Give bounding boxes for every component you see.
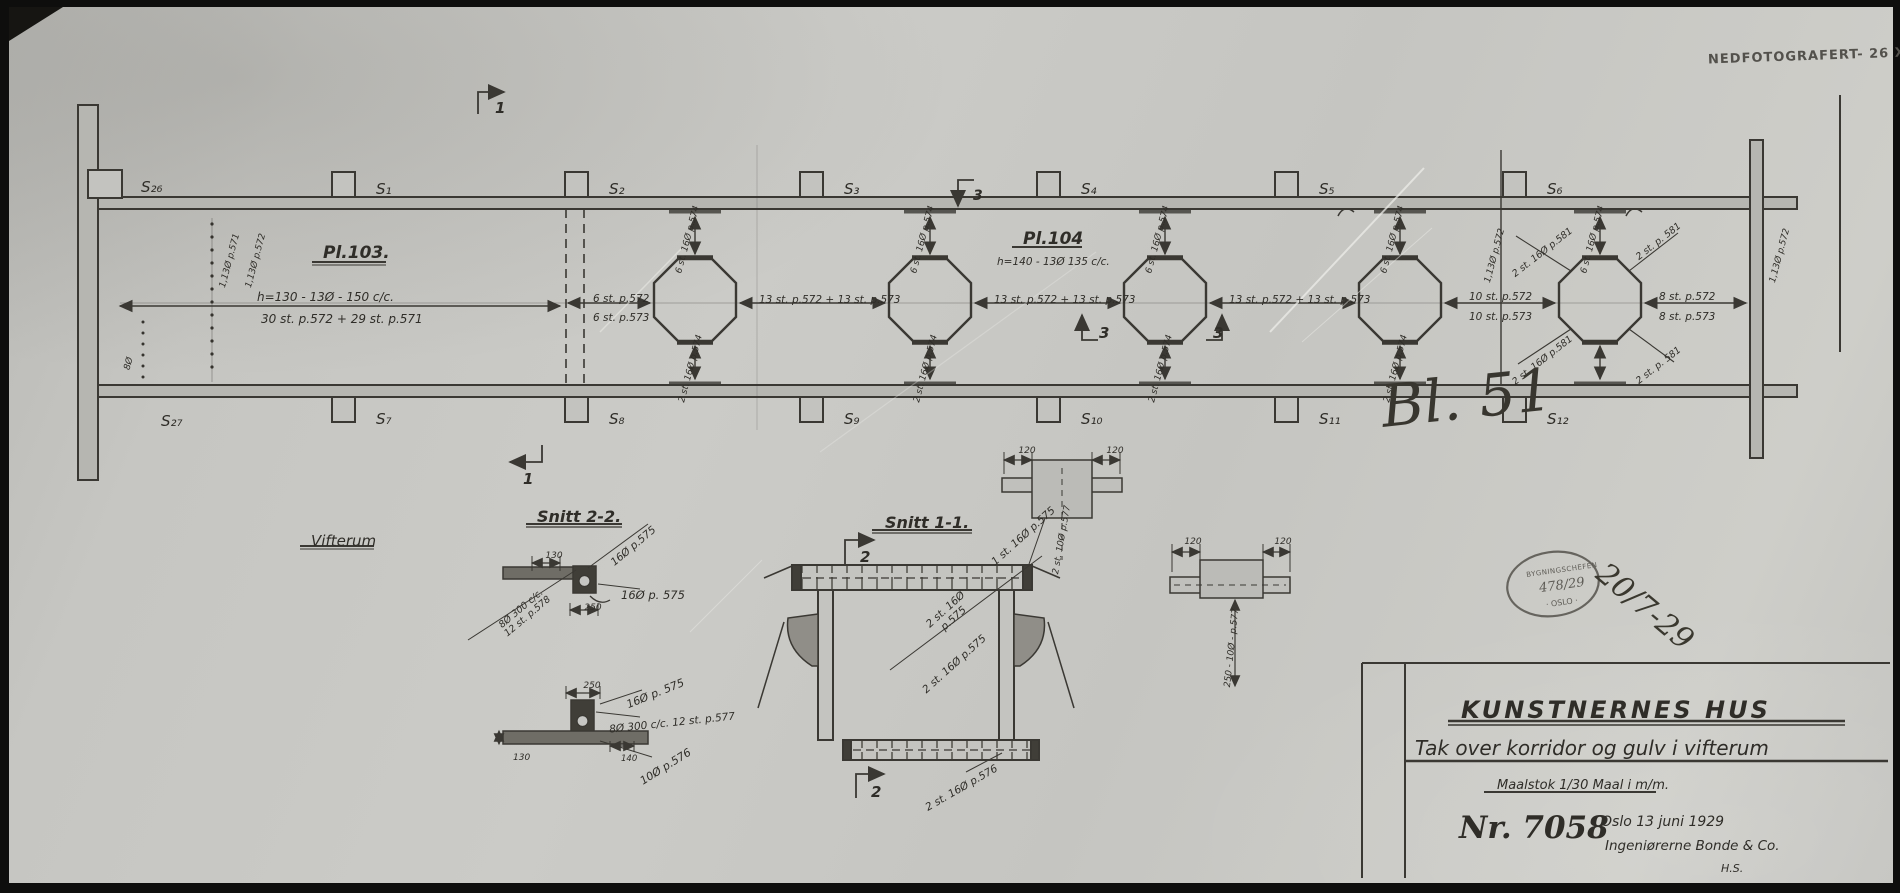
beam-label-s7: S₇ xyxy=(376,411,392,428)
snitt22-dim-130: 130 xyxy=(539,552,569,562)
section-mark-1-bottom: 1 xyxy=(523,471,533,488)
titleblock-firm: Ingeniørerne Bonde & Co. xyxy=(1605,839,1780,854)
dim-label-b-top: 10 st. p.572 xyxy=(1469,292,1532,304)
floor-dim-140: 140 xyxy=(621,755,637,764)
plan-label-pl104: Pl.104 xyxy=(1023,230,1083,249)
snitt22-dim-250: 250 xyxy=(579,604,607,614)
dim-label-mid-2: 13 st. p.572 + 13 st. p.573 xyxy=(994,295,1119,307)
dim-label-c-bot: 8 st. p.573 xyxy=(1659,312,1715,324)
detail-b-dim2: 120 xyxy=(1267,538,1299,548)
dim-label-mid-1: 13 st. p.572 + 13 st. p.573 xyxy=(759,295,884,307)
dim-label-b-bot: 10 st. p.573 xyxy=(1469,312,1532,324)
dim-label-a-bot: 6 st. p.573 xyxy=(593,313,649,325)
snitt22-botbar-label: 16Ø p. 575 xyxy=(621,589,685,602)
floor-dim-130: 130 xyxy=(513,754,530,764)
section-mark-2-bottom: 2 xyxy=(871,784,881,801)
plan-note-pl103-line2: 30 st. p.572 + 29 st. p.571 xyxy=(261,313,423,326)
snitt22-title: Snitt 2-2. xyxy=(537,508,621,526)
plan-note-pl103-line1: h=130 - 13Ø - 150 c/c. xyxy=(257,291,394,304)
beam-label-s6: S₆ xyxy=(1547,181,1563,198)
titleblock-initials: H.S. xyxy=(1721,863,1743,875)
titleblock-place-date: Oslo 13 juni 1929 xyxy=(1601,815,1724,830)
beam-label-s8: S₈ xyxy=(609,411,625,428)
section-mark-1-top: 1 xyxy=(495,100,505,117)
snitt11-title: Snitt 1-1. xyxy=(885,514,969,532)
beam-label-s10: S₁₀ xyxy=(1081,411,1103,428)
titleblock-scale: Maalstok 1/30 Maal i m/m. xyxy=(1497,779,1669,793)
beam-label-s3: S₃ xyxy=(844,181,860,198)
dim-label-mid-3: 13 st. p.572 + 13 st. p.573 xyxy=(1229,295,1354,307)
beam-label-s9: S₉ xyxy=(844,411,860,428)
scanned-drawing: NEDFOTOGRAFERT- 26 X Pl.103. h=130 - 13Ø… xyxy=(0,0,1900,893)
beam-label-s1: S₁ xyxy=(376,181,392,198)
beam-label-s5: S₅ xyxy=(1319,181,1335,198)
section-mark-3-left: 3 xyxy=(1099,325,1109,342)
beam-label-s26: S₂₆ xyxy=(141,179,163,196)
beam-label-s27: S₂₇ xyxy=(161,413,183,430)
detail-b-dim1: 120 xyxy=(1177,538,1209,548)
titleblock-drawing-number: Nr. 7058 xyxy=(1459,811,1609,845)
beam-label-s11: S₁₁ xyxy=(1319,411,1341,428)
plan-note-pl104: h=140 - 13Ø 135 c/c. xyxy=(997,257,1110,269)
beam-label-s4: S₄ xyxy=(1081,181,1097,198)
beam-label-s2: S₂ xyxy=(609,181,625,198)
detail-a-dim2: 120 xyxy=(1099,447,1131,457)
section-mark-3-top: 3 xyxy=(973,189,983,204)
plan-label-pl103: Pl.103. xyxy=(323,244,390,263)
detail-a-dim1: 120 xyxy=(1011,447,1043,457)
section-mark-3-right: 3 xyxy=(1213,325,1223,342)
titleblock-project: KUNSTNERNES HUS xyxy=(1461,697,1771,723)
paper-sheet: NEDFOTOGRAFERT- 26 X Pl.103. h=130 - 13Ø… xyxy=(9,7,1893,883)
dim-label-c-top: 8 st. p.572 xyxy=(1659,292,1715,304)
dim-label-a-top: 6 st. p.572 xyxy=(593,294,649,306)
floor-dim-250: 250 xyxy=(575,682,609,692)
section-mark-2-top: 2 xyxy=(860,549,870,566)
room-label-vifterum: Vifterum xyxy=(311,533,376,550)
titleblock-subject: Tak over korridor og gulv i vifterum xyxy=(1415,737,1769,759)
